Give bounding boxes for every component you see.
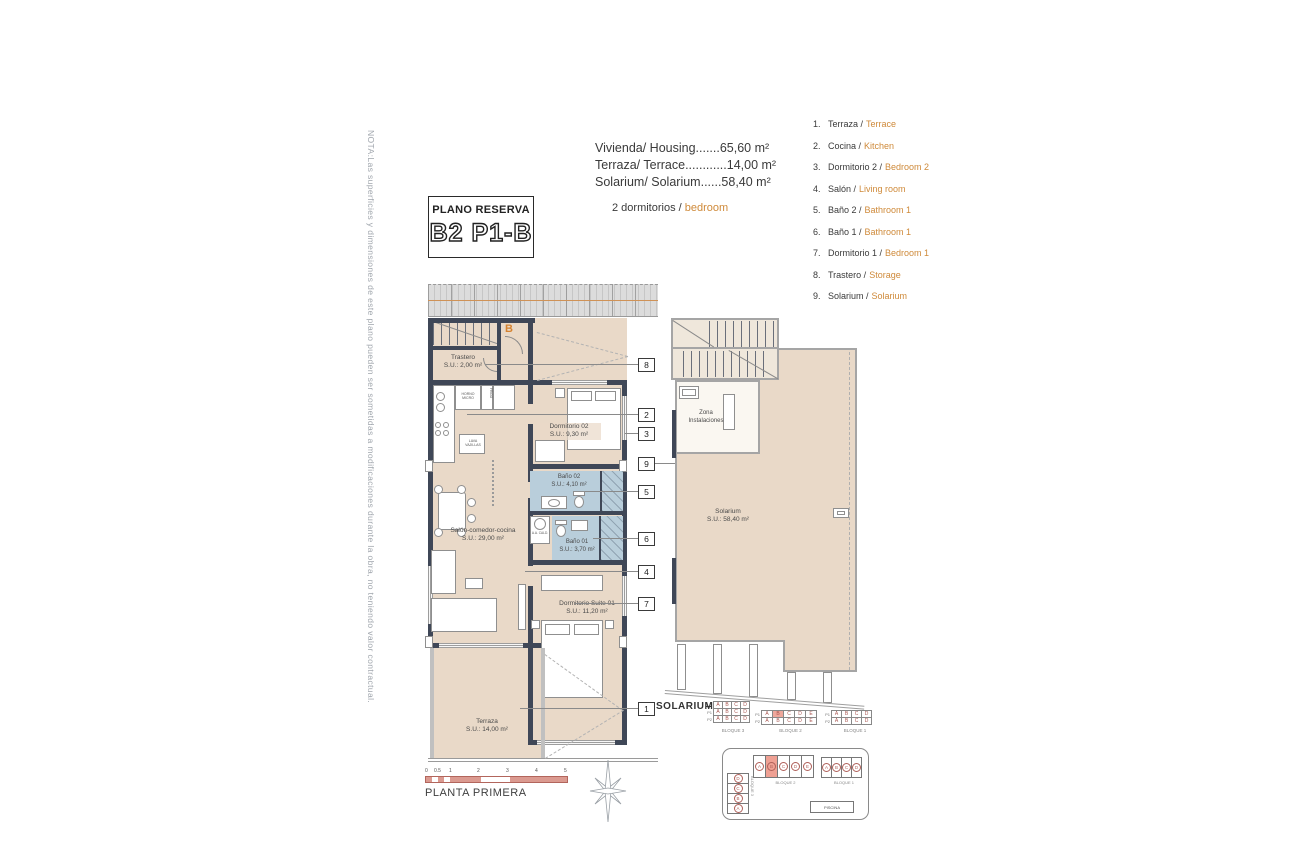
scale-seg <box>539 777 567 782</box>
wall-entry-left <box>497 318 501 380</box>
callout-4: 4 <box>638 565 655 579</box>
legend-item-bano2: 5.Baño 2 /Bathroom 1 <box>813 205 929 215</box>
kitchen-sink <box>436 392 445 401</box>
callout-number: 6 <box>644 534 649 544</box>
dorm2-pillow <box>595 391 616 401</box>
room-name: Instalaciones <box>677 418 735 426</box>
bath2-label: Baño 02 S.U.: 4,10 m² <box>543 474 595 490</box>
callout-number: 9 <box>644 459 649 469</box>
wall-dorm2-bottom <box>528 464 627 469</box>
water-heater <box>534 518 546 530</box>
salon-label: Salón-comedor-cocina S.U.: 29,00 m² <box>439 527 527 544</box>
scale-tick: 0 <box>425 768 428 774</box>
bath2-sink-bowl <box>548 499 560 507</box>
dorm2-nightstand <box>555 388 565 398</box>
callout-2: 2 <box>638 408 655 422</box>
legend-num: 1. <box>813 119 828 129</box>
unit-code: B2 P1-B <box>429 219 533 248</box>
scale-bar: 0 0.5 1 2 3 4 5 PLANTA PRIMERA <box>425 768 585 800</box>
dining-chair <box>467 498 476 507</box>
room-area: S.U.: 9,30 m² <box>537 431 601 439</box>
suite-nightstand <box>605 620 614 629</box>
plan-title: PLANO RESERVA <box>429 204 533 216</box>
unit-letter: A <box>822 763 831 772</box>
legend-num: 3. <box>813 162 828 172</box>
legend-item-bano1: 6.Baño 1 /Bathroom 1 <box>813 227 929 237</box>
dining-table <box>438 492 466 530</box>
legend-es: Dormitorio 2 / <box>828 162 882 172</box>
site-unit: D <box>851 757 862 778</box>
legend-en: Living room <box>859 184 906 194</box>
window-dorm2-top <box>552 380 607 385</box>
coffee-table <box>465 578 483 589</box>
leader-7 <box>575 603 638 604</box>
unit-letter: D <box>734 774 743 783</box>
room-area: S.U.: 14,00 m² <box>455 726 519 734</box>
summary-terrace: Terraza/ Terrace............14,00 m² <box>595 157 776 174</box>
bloque3-table-label: BLOQUE 3 <box>713 728 753 733</box>
site-bloque1-label: BLOQUE 1 <box>822 780 866 785</box>
callout-1: 1 <box>638 702 655 716</box>
legend-en: Bathroom 1 <box>865 205 912 215</box>
bloque1-table-label: BLOQUE 1 <box>833 728 877 733</box>
scale-tick: 1 <box>449 768 452 774</box>
legend-en: Bedroom 1 <box>885 248 929 258</box>
bloque2-table-label: BLOQUE 2 <box>763 728 818 733</box>
site-bloque2-label: BLOQUE 2 <box>758 780 813 785</box>
zona-equipment-inner <box>682 389 696 396</box>
callout-6: 6 <box>638 532 655 546</box>
wall-stairs-bottom <box>428 346 501 350</box>
legend-num: 8. <box>813 270 828 280</box>
legend-es: Baño 2 / <box>828 205 862 215</box>
unit-letter: E <box>803 762 812 771</box>
room-area: S.U.: 4,10 m² <box>543 482 595 490</box>
site-pool: PISCINA <box>810 801 854 813</box>
site-bloque2: A B C D E <box>753 755 814 778</box>
site-unit: E <box>801 755 814 778</box>
unit-letter: A <box>734 804 743 813</box>
pergola-beam <box>677 644 686 690</box>
unit-letter: D <box>791 762 800 771</box>
solarium-plan: Zona Instalaciones Solarium S.U.: 58,40 … <box>665 312 865 712</box>
summary-solarium: Solarium/ Solarium......58,40 m² <box>595 174 776 191</box>
kitchen-sink <box>436 403 445 412</box>
setback-dashed-line <box>849 352 850 670</box>
entry-letter: B <box>505 323 513 335</box>
zona-label: Zona Instalaciones <box>677 410 735 426</box>
kitchen-cabinet <box>493 385 515 410</box>
scale-tick: 4 <box>535 768 538 774</box>
roof-ridge-line <box>428 300 658 301</box>
wall-bath2-bottom <box>528 511 627 515</box>
legend-en: Solarium <box>872 291 908 301</box>
trastero-label: Trastero S.U.: 2,00 m² <box>435 354 491 371</box>
unit-letter: D <box>852 763 861 772</box>
bath1-sink <box>571 520 588 531</box>
room-name: Solarium <box>693 508 763 516</box>
unit-letter: C <box>779 762 788 771</box>
legend-en: Bedroom 2 <box>885 162 929 172</box>
legend-en: Kitchen <box>864 141 894 151</box>
leader-4 <box>525 571 638 572</box>
bedrooms-en: bedroom <box>685 202 728 214</box>
key-table-bloque2: P1ABCDE P2ABCDE <box>752 710 817 725</box>
scale-tick: 5 <box>564 768 567 774</box>
room-name: Zona <box>677 410 735 418</box>
unit-letter: C <box>734 784 743 793</box>
room-name: Baño 01 <box>553 539 601 547</box>
scale-seg <box>452 777 481 782</box>
legend-num: 2. <box>813 141 828 151</box>
callout-7: 7 <box>638 597 655 611</box>
callout-number: 4 <box>644 567 649 577</box>
legend-item-solarium: 9.Solarium /Solarium <box>813 291 929 301</box>
scale-seg <box>481 777 510 782</box>
legend-es: Terraza / <box>828 119 863 129</box>
legend-es: Dormitorio 1 / <box>828 248 882 258</box>
oven-micro-label: HORNO MICRO <box>456 393 480 401</box>
fridge-unit: FRIGO <box>481 385 493 410</box>
bath1-toilet-bowl <box>556 525 566 537</box>
legend-item-terraza: 1.Terraza /Terrace <box>813 119 929 129</box>
bath1-label: Baño 01 S.U.: 3,70 m² <box>553 539 601 555</box>
pergola-beam <box>749 644 758 697</box>
oven-micro-unit: HORNO MICRO <box>455 385 481 410</box>
cooktop-burner <box>443 422 449 428</box>
legend-item-dormitorio1: 7.Dormitorio 1 /Bedroom 1 <box>813 248 929 258</box>
legend-es: Baño 1 / <box>828 227 862 237</box>
room-area: S.U.: 11,20 m² <box>551 608 623 616</box>
dorm2-wardrobe <box>535 440 565 462</box>
legend-es: Solarium / <box>828 291 869 301</box>
key-row: P2ABCD <box>822 717 872 725</box>
legend: 1.Terraza /Terrace 2.Cocina /Kitchen 3.D… <box>813 119 929 313</box>
areas-summary: Vivienda/ Housing.......65,60 m² Terraza… <box>595 140 776 191</box>
stairs-treads-lower <box>683 351 769 377</box>
sofa <box>431 598 497 632</box>
scale-seg-checks <box>426 777 452 782</box>
cooktop-burner <box>435 430 441 436</box>
callout-5: 5 <box>638 485 655 499</box>
scale-ruler <box>425 776 568 783</box>
room-name: Dormitorio 02 <box>537 423 601 431</box>
legend-es: Cocina / <box>828 141 861 151</box>
pergola-beam <box>713 644 722 694</box>
room-area: S.U.: 2,00 m² <box>435 362 491 370</box>
compass-rose <box>583 758 633 828</box>
room-area: S.U.: 29,00 m² <box>439 535 527 543</box>
solarium-floor-jut <box>783 640 857 672</box>
key-row: P2ABCD <box>704 715 750 723</box>
stairs-mid-landing <box>671 347 779 349</box>
leader-3 <box>625 433 638 434</box>
suite-pillow <box>545 624 570 635</box>
legend-num: 5. <box>813 205 828 215</box>
callout-number: 1 <box>644 704 649 714</box>
scale-tick: 3 <box>506 768 509 774</box>
terrace-wall-right <box>541 648 545 758</box>
unit-letter: C <box>842 763 851 772</box>
wall-top <box>428 318 535 323</box>
title-box: PLANO RESERVA B2 P1-B <box>428 196 534 258</box>
legend-en: Bathroom 1 <box>865 227 912 237</box>
site-unit: A <box>727 803 749 814</box>
key-cell: D <box>861 717 872 725</box>
unit-letter: B <box>767 762 776 771</box>
disclaimer-note: NOTA:Las superficies y dimensiones de es… <box>366 130 376 740</box>
compass-icon <box>583 758 633 828</box>
legend-num: 9. <box>813 291 828 301</box>
dining-chair <box>434 485 443 494</box>
fridge-label: FRIGO <box>484 388 492 398</box>
water-heater-label: A.A. CALD. <box>530 532 550 536</box>
solarium-wall-strip <box>672 558 676 604</box>
unit-letter: B <box>734 794 743 803</box>
ceiling-change-dotted <box>492 460 494 506</box>
dishwasher-unit: LAVA VAJILLAS <box>459 434 485 454</box>
callout-8: 8 <box>638 358 655 372</box>
legend-num: 7. <box>813 248 828 258</box>
unit-letter: A <box>755 762 764 771</box>
dining-chair <box>457 485 466 494</box>
legend-en: Storage <box>869 270 901 280</box>
solarium-label: Solarium S.U.: 58,40 m² <box>693 508 763 525</box>
site-bloque3: D C B A <box>727 773 749 814</box>
door-gap-hall <box>528 566 533 586</box>
room-area: S.U.: 58,40 m² <box>693 516 763 524</box>
dishwasher-label: LAVA VAJILLAS <box>461 440 485 448</box>
legend-item-dormitorio2: 3.Dormitorio 2 /Bedroom 2 <box>813 162 929 172</box>
pergola-beam <box>823 672 832 703</box>
site-key-plan: A B C D E BLOQUE 2 A B C D BLOQUE 1 D C … <box>722 748 869 820</box>
legend-num: 6. <box>813 227 828 237</box>
wall-tab <box>619 636 627 648</box>
callout-number: 5 <box>644 487 649 497</box>
callout-number: 3 <box>644 429 649 439</box>
legend-item-salon: 4.Salón /Living room <box>813 184 929 194</box>
key-cell: D <box>740 715 750 723</box>
row-label-p2: P2 <box>704 715 713 723</box>
room-name: Trastero <box>435 354 491 362</box>
wall-bath1-bottom <box>528 560 627 565</box>
dorm2-label: Dormitorio 02 S.U.: 9,30 m² <box>537 423 601 440</box>
leader-8 <box>485 364 638 365</box>
stairs-treads-upper <box>709 321 775 347</box>
unit-letter: B <box>832 763 841 772</box>
scale-tick: 2 <box>477 768 480 774</box>
scale-seg <box>510 777 539 782</box>
room-name: Baño 02 <box>543 474 595 482</box>
room-name: Terraza <box>455 718 519 726</box>
room-name: Dormitorio Suite 01 <box>551 600 623 608</box>
pergola-beam <box>787 672 796 700</box>
leader-6 <box>593 538 638 539</box>
wall-tab <box>425 636 433 648</box>
bath2-toilet-bowl <box>574 496 584 508</box>
armchair <box>431 550 456 594</box>
pool-label: PISCINA <box>824 805 840 810</box>
slider-suite <box>537 740 615 745</box>
terrace-label: Terraza S.U.: 14,00 m² <box>455 718 519 735</box>
callout-number: 2 <box>644 410 649 420</box>
room-name: Salón-comedor-cocina <box>439 527 527 535</box>
suite-pillow <box>574 624 599 635</box>
legend-item-cocina: 2.Cocina /Kitchen <box>813 141 929 151</box>
legend-num: 4. <box>813 184 828 194</box>
suite-wardrobe <box>541 575 603 591</box>
legend-item-trastero: 8.Trastero /Storage <box>813 270 929 280</box>
room-area: S.U.: 3,70 m² <box>553 547 601 555</box>
key-cell: E <box>805 717 817 725</box>
wall-tab <box>425 460 433 472</box>
site-bloque1: A B C D <box>821 757 862 778</box>
cooktop-burner <box>443 430 449 436</box>
leader-1 <box>520 708 638 709</box>
floor-plan-sheet: NOTA:Las superficies y dimensiones de es… <box>0 0 1290 850</box>
row-label-p2: P2 <box>822 717 831 725</box>
key-row: P2ABCDE <box>752 717 817 725</box>
scale-tick: 0.5 <box>434 768 441 774</box>
solarium-wall-strip <box>672 410 676 458</box>
roof-hatch <box>428 284 658 317</box>
leader-5 <box>585 491 638 492</box>
vent-box-inner <box>837 511 845 515</box>
callout-9: 9 <box>638 457 655 471</box>
key-table-bloque1: P1ABCD P2ABCD <box>822 710 872 725</box>
plan-level-label: PLANTA PRIMERA <box>425 787 527 799</box>
summary-housing: Vivienda/ Housing.......65,60 m² <box>595 140 776 157</box>
legend-es: Salón / <box>828 184 856 194</box>
key-table-bloque3: ABCD P1ABCD P2ABCD <box>704 701 750 723</box>
row-label-p2: P2 <box>752 717 761 725</box>
site-bloque3-label: BLOQUE 3 <box>750 776 755 796</box>
bedrooms-es: 2 dormitorios / <box>612 202 682 214</box>
dining-chair <box>467 514 476 523</box>
bedrooms-line: 2 dormitorios / bedroom <box>612 202 728 214</box>
legend-es: Trastero / <box>828 270 866 280</box>
leader-2 <box>467 414 638 415</box>
callout-number: 8 <box>644 360 649 370</box>
legend-en: Terrace <box>866 119 896 129</box>
suite-nightstand <box>531 620 540 629</box>
terrace-wall-left <box>430 648 434 758</box>
slider-terrace <box>439 643 523 648</box>
callout-3: 3 <box>638 427 655 441</box>
tv-bench <box>518 584 526 630</box>
cooktop-burner <box>435 422 441 428</box>
callout-number: 7 <box>644 599 649 609</box>
dorm2-pillow <box>571 391 592 401</box>
